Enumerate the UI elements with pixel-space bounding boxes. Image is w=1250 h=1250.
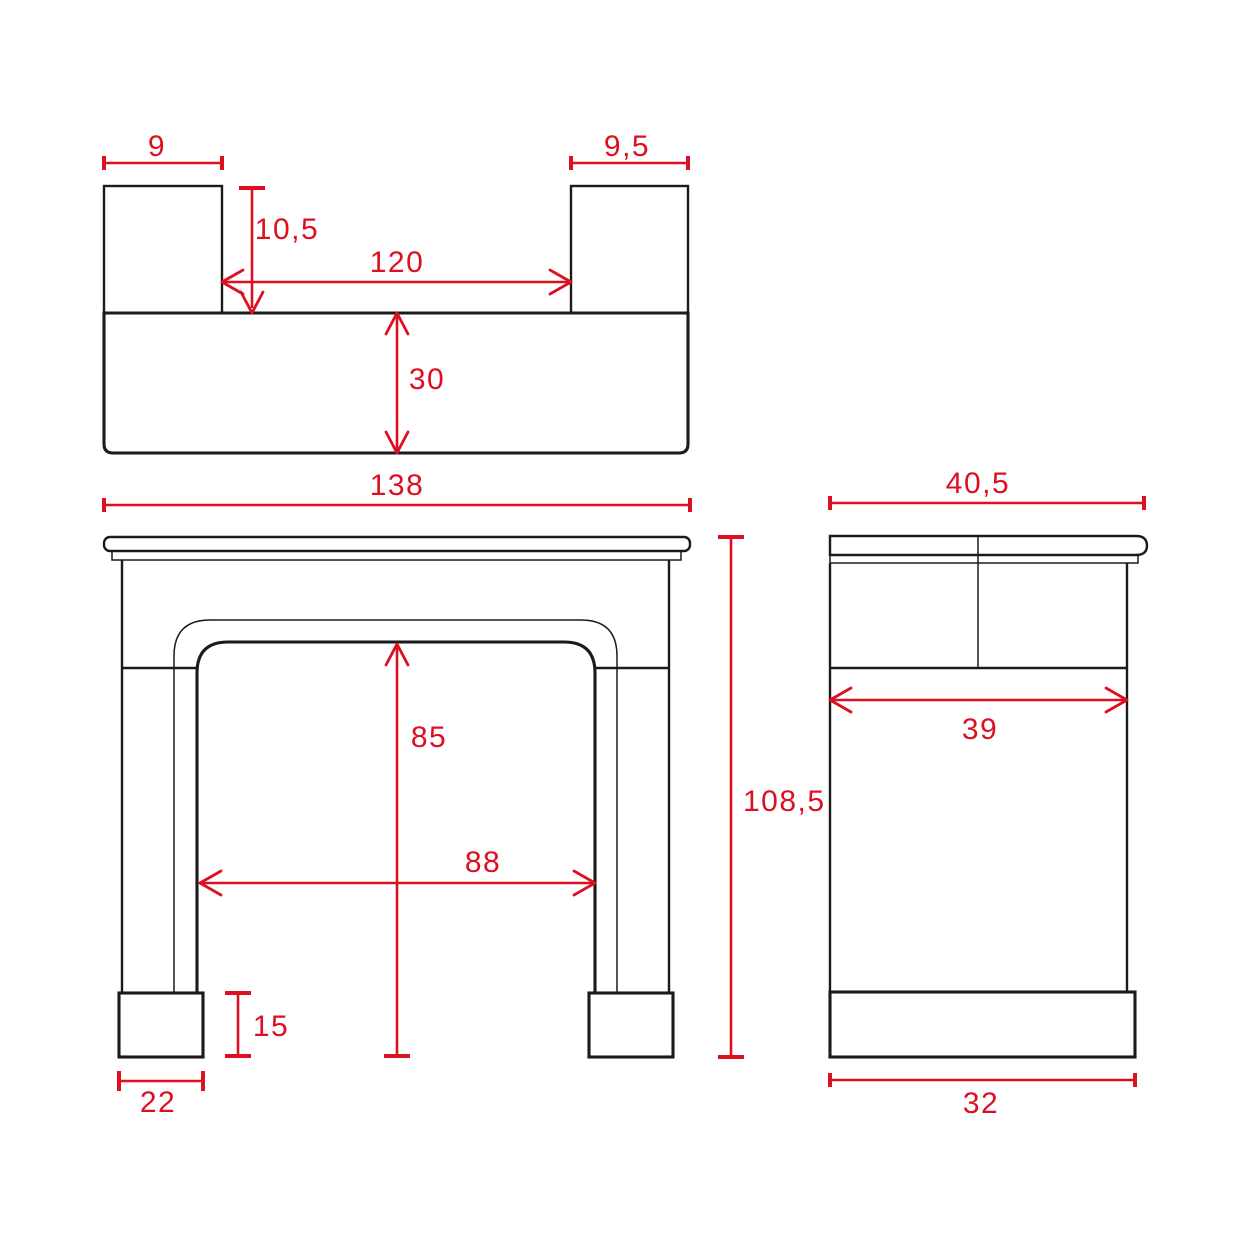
dim-leg-depth-label: 10,5 xyxy=(255,213,319,246)
dim-plinth-width: 22 xyxy=(119,1071,203,1119)
side-plinth xyxy=(830,992,1135,1057)
front-shelf-lip xyxy=(112,551,681,560)
dim-shelf-depth-label: 30 xyxy=(409,363,445,396)
dim-right-leg-width-label: 9,5 xyxy=(604,130,650,163)
front-right-plinth xyxy=(589,993,673,1057)
dim-plinth-depth-label: 32 xyxy=(963,1087,999,1120)
dim-body-depth: 39 xyxy=(830,688,1127,746)
dim-left-leg-width-label: 9 xyxy=(148,130,166,163)
dim-shelf-depth: 30 xyxy=(386,313,445,453)
drawing-canvas: 9 9,5 10,5 120 30 xyxy=(0,0,1250,1250)
dim-inner-width: 120 xyxy=(222,246,571,294)
dim-body-depth-label: 39 xyxy=(962,713,998,746)
dim-right-leg-width: 9,5 xyxy=(571,130,688,170)
plan-left-leg xyxy=(104,186,222,313)
front-view: 138 85 88 xyxy=(104,469,826,1119)
dim-opening-width-label: 88 xyxy=(465,846,501,879)
front-shelf xyxy=(104,537,690,551)
dim-plinth-depth: 32 xyxy=(830,1073,1135,1120)
dim-overall-width-label: 138 xyxy=(370,469,425,502)
dim-overall-height: 108,5 xyxy=(718,537,826,1057)
plan-right-leg xyxy=(571,186,688,313)
dim-inner-width-label: 120 xyxy=(370,246,425,279)
dim-left-leg-width: 9 xyxy=(104,130,222,170)
dim-shelf-depth-overall-label: 40,5 xyxy=(946,467,1010,500)
plan-view: 9 9,5 10,5 120 30 xyxy=(104,130,688,453)
dim-overall-height-label: 108,5 xyxy=(743,785,826,818)
dim-plinth-height-label: 15 xyxy=(253,1010,289,1043)
front-left-plinth xyxy=(119,993,203,1057)
dim-plinth-width-label: 22 xyxy=(140,1086,176,1119)
dim-leg-depth: 10,5 xyxy=(239,188,319,313)
dim-overall-width: 138 xyxy=(104,469,690,512)
front-surround-outer-line xyxy=(174,620,617,993)
dim-opening-height-label: 85 xyxy=(411,721,447,754)
dim-shelf-depth-overall: 40,5 xyxy=(830,467,1144,510)
dim-opening-height: 85 xyxy=(384,644,447,1056)
dim-plinth-height: 15 xyxy=(225,993,289,1056)
side-view: 40,5 39 32 xyxy=(830,467,1147,1120)
side-shelf xyxy=(830,536,1147,555)
technical-drawing: 9 9,5 10,5 120 30 xyxy=(0,0,1250,1250)
